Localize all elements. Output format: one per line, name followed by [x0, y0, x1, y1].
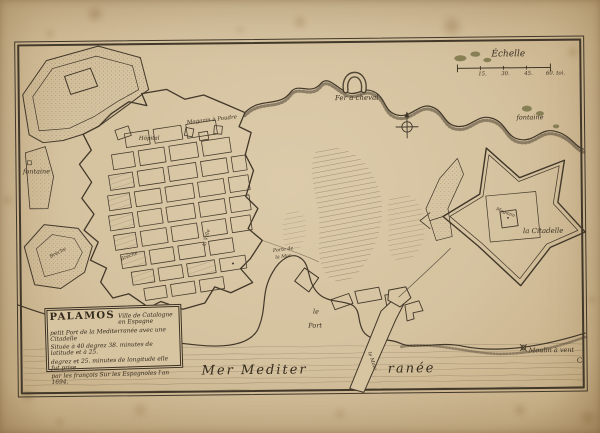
label-le-port: Port	[308, 323, 322, 330]
label-fer-a-cheval: Fer a cheval	[335, 95, 379, 102]
label-mer-mediterranee: Mer Mediter	[202, 363, 308, 377]
label-moulin-a-vent: Moulin à vent	[529, 347, 575, 354]
label-fontaine-right: fontaine	[516, 114, 543, 121]
scale-tick: 60. toi.	[546, 72, 565, 78]
cartouche-line: petit Port de la Mediterranée avec une C…	[50, 327, 177, 343]
town-wall	[79, 88, 263, 310]
label-hopital: Hôpital	[139, 137, 160, 143]
label-mark-c: C	[577, 358, 582, 365]
map-subtitle-text: Ville de Catalogne en Espagne	[118, 312, 177, 326]
label-le-port: le	[313, 309, 319, 316]
hills-hatching	[282, 147, 426, 283]
scale-tick: 15.	[478, 72, 487, 77]
sea-gate-ravelin	[295, 268, 319, 292]
engraved-plate: Échelle 15. 30. 45. 60. toi. Fer a cheva…	[0, 0, 600, 433]
citadel	[419, 147, 585, 287]
label-fontaine-left: fontaine	[23, 168, 50, 175]
map-title-text: PALAMOS	[49, 310, 115, 323]
title-cartouche: PALAMOS Ville de Catalogne en Espagne pe…	[44, 304, 183, 372]
label-la-citadelle: la Citadelle	[523, 228, 564, 235]
harbor-buildings	[331, 287, 423, 322]
map-sheet: Échelle 15. 30. 45. 60. toi. Fer a cheva…	[0, 0, 600, 433]
scale-tick: 45.	[524, 72, 533, 77]
scale-tick: 30.	[501, 72, 510, 77]
town-street-blocks	[97, 116, 265, 304]
horseshoe-icon	[345, 75, 364, 91]
label-mer-mediterranee: ranée	[388, 362, 436, 375]
windmill-icon	[520, 345, 526, 351]
label-echelle: Échelle	[491, 50, 525, 59]
cartouche-line: Située à 40 degrez 38. minutes de latitu…	[50, 341, 177, 357]
